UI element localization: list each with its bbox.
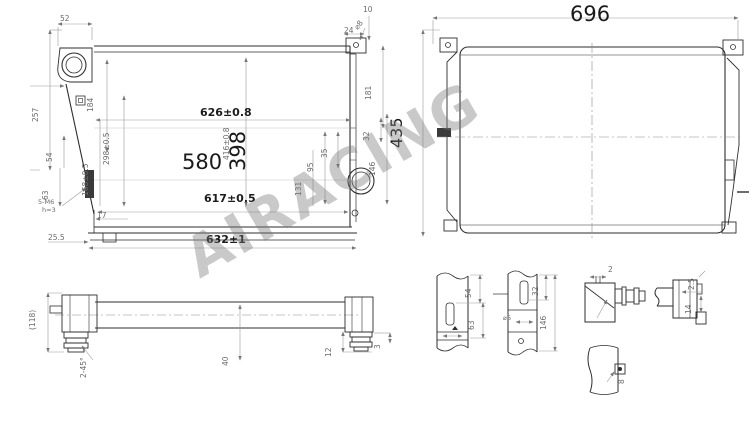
dim-632: 632±1 [206,235,246,245]
section-b-drawing [493,271,537,355]
dim-696: 696 [570,2,610,26]
dim-257: 257 [31,108,41,122]
dim-24: 24 [344,26,354,36]
dim-298: 298±0.5 [102,132,112,165]
dim-184: 184 [86,98,96,112]
detail-e-drawing [588,346,625,395]
dim-14: 14 [684,304,694,314]
dim-35: 35 [320,148,330,158]
rear-view-dimensions [423,18,742,240]
dim-146-front: 146 [368,162,378,176]
dim-25-5: 25.5 [48,233,65,243]
dim-626: 626±0.8 [200,108,252,118]
dim-168: 168±0.5 [81,163,91,196]
dim-54-front: 54 [45,152,55,162]
dim-52: 52 [60,14,70,24]
dim-10: 10 [363,5,373,15]
dim-398: 398 [226,131,250,171]
section-a-drawing [437,273,468,351]
side-view-dimensions [48,293,390,360]
technical-drawing-page: { "watermark": { "text": "AIRACING" }, "… [0,0,750,421]
dim-32-front: 32 [362,131,372,141]
dim-32-section: 32 [531,286,541,296]
dim-2: 2 [608,265,613,275]
dim-phi6: ⌀6 [503,313,511,323]
dim-146-section: 146 [539,316,549,330]
dim-12: 12 [324,347,334,357]
dim-435: 435 [388,117,406,148]
front-view-dimensions [30,16,387,248]
dim-40: 40 [221,356,231,366]
dim-54-section: 54 [464,288,474,298]
dim-181: 181 [364,86,374,100]
detail-c-drawing [585,276,645,322]
dim-2-5: 2.5 [687,278,697,290]
dim-h3: h=3 [42,205,56,215]
dim-8: 8 [617,379,627,384]
dim-17: 17 [97,211,107,221]
dim-118: (118) [28,310,38,330]
detail-d-drawing [655,280,706,324]
dim-63-section: 63 [467,320,477,330]
section-a-dimensions [443,275,486,338]
side-view-drawing [50,295,373,352]
dim-580: 580 [182,150,222,174]
dim-chamfer: 2-45° [79,357,89,378]
dim-131: 131 [294,182,304,196]
dim-3: 3 [373,344,383,349]
dim-617: 617±0.5 [204,194,256,204]
dim-95: 95 [306,162,316,172]
detail-e-dimensions [607,372,614,382]
rear-view-drawing [437,38,749,233]
drawing-canvas [0,0,750,421]
